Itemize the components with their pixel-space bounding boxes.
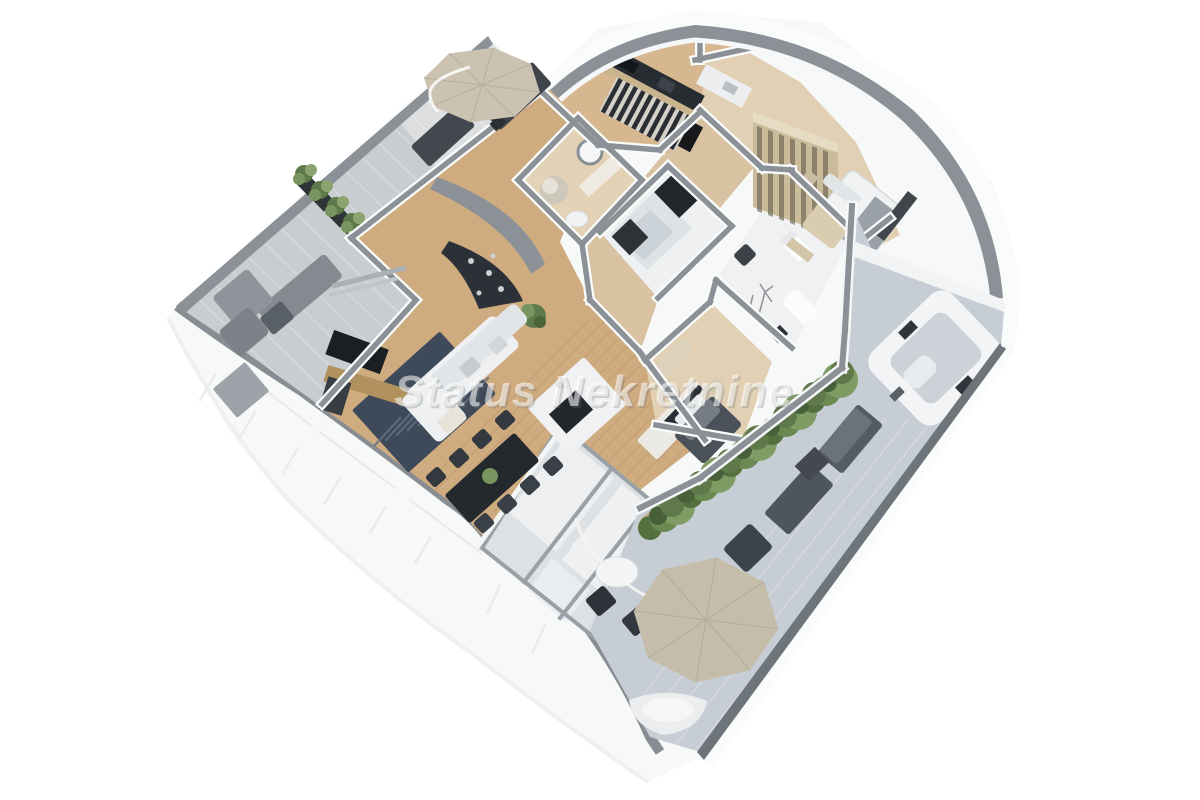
svg-text:Status Nekretnine: Status Nekretnine [394,367,794,416]
